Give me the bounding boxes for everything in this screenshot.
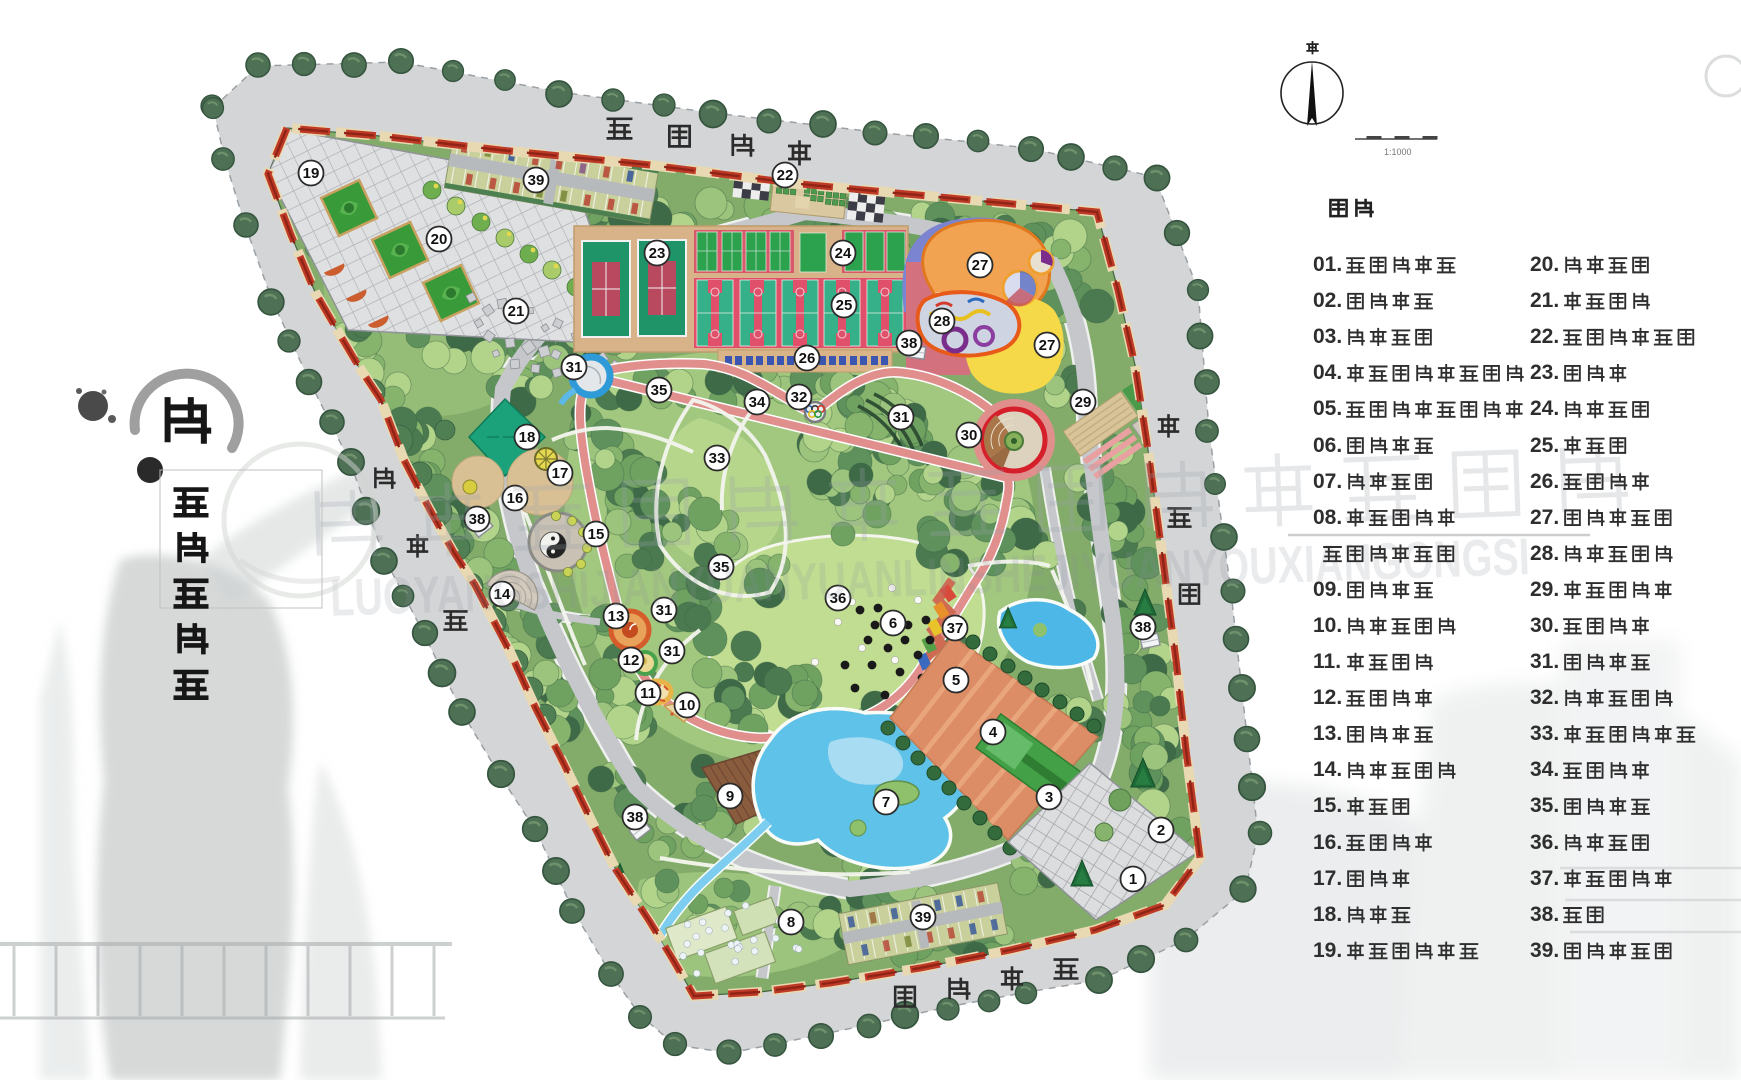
svg-text:11.: 11. bbox=[1313, 650, 1341, 673]
svg-text:8: 8 bbox=[787, 914, 795, 931]
svg-text:24.: 24. bbox=[1530, 397, 1559, 420]
svg-text:33: 33 bbox=[709, 450, 726, 467]
svg-text:38.: 38. bbox=[1530, 903, 1559, 926]
svg-text:10.: 10. bbox=[1313, 614, 1342, 637]
svg-text:28: 28 bbox=[934, 313, 951, 330]
svg-text:34: 34 bbox=[749, 394, 766, 411]
svg-text:39: 39 bbox=[915, 909, 932, 926]
svg-text:20: 20 bbox=[431, 231, 448, 248]
svg-text:1: 1 bbox=[1129, 871, 1137, 888]
svg-text:7: 7 bbox=[882, 794, 890, 811]
svg-text:38: 38 bbox=[1135, 619, 1152, 636]
svg-text:21: 21 bbox=[508, 303, 525, 320]
svg-text:30: 30 bbox=[961, 427, 978, 444]
svg-text:23: 23 bbox=[649, 245, 666, 262]
svg-text:19: 19 bbox=[303, 165, 320, 182]
svg-text:31: 31 bbox=[893, 409, 910, 426]
svg-text:2: 2 bbox=[1157, 822, 1165, 839]
svg-text:02.: 02. bbox=[1313, 289, 1342, 312]
svg-text:26.: 26. bbox=[1530, 470, 1559, 493]
svg-text:1:1000: 1:1000 bbox=[1384, 147, 1412, 157]
svg-text:04.: 04. bbox=[1313, 361, 1342, 384]
svg-text:31.: 31. bbox=[1530, 650, 1559, 673]
svg-text:01.: 01. bbox=[1313, 253, 1342, 276]
svg-text:23.: 23. bbox=[1530, 361, 1559, 384]
svg-text:35: 35 bbox=[651, 382, 668, 399]
svg-text:11: 11 bbox=[640, 685, 656, 702]
svg-text:16.: 16. bbox=[1313, 831, 1342, 854]
svg-text:10: 10 bbox=[679, 697, 696, 714]
svg-text:38: 38 bbox=[627, 809, 644, 826]
svg-text:6: 6 bbox=[889, 615, 897, 632]
svg-text:09.: 09. bbox=[1313, 578, 1342, 601]
svg-text:17.: 17. bbox=[1313, 867, 1342, 890]
svg-text:15.: 15. bbox=[1313, 794, 1342, 817]
svg-text:32.: 32. bbox=[1530, 686, 1559, 709]
svg-text:39.: 39. bbox=[1530, 939, 1559, 962]
svg-text:28.: 28. bbox=[1530, 542, 1559, 565]
svg-text:26: 26 bbox=[799, 350, 816, 367]
svg-text:18.: 18. bbox=[1313, 903, 1342, 926]
svg-text:31: 31 bbox=[664, 643, 681, 660]
svg-text:32: 32 bbox=[791, 389, 808, 406]
svg-text:17: 17 bbox=[552, 465, 569, 482]
svg-text:03.: 03. bbox=[1313, 325, 1342, 348]
svg-text:18: 18 bbox=[519, 429, 536, 446]
svg-text:5: 5 bbox=[952, 672, 960, 689]
svg-text:25.: 25. bbox=[1530, 434, 1559, 457]
svg-text:08.: 08. bbox=[1313, 506, 1342, 529]
svg-text:37: 37 bbox=[947, 620, 964, 637]
svg-text:4: 4 bbox=[989, 724, 998, 741]
svg-text:34.: 34. bbox=[1530, 758, 1559, 781]
svg-text:24: 24 bbox=[835, 245, 852, 262]
svg-text:25: 25 bbox=[836, 297, 853, 314]
svg-text:15: 15 bbox=[588, 526, 605, 543]
svg-text:27.: 27. bbox=[1530, 506, 1559, 529]
svg-text:12: 12 bbox=[623, 652, 640, 669]
svg-text:12.: 12. bbox=[1313, 686, 1342, 709]
svg-text:29.: 29. bbox=[1530, 578, 1559, 601]
svg-text:20.: 20. bbox=[1530, 253, 1559, 276]
svg-text:06.: 06. bbox=[1313, 434, 1342, 457]
svg-text:35.: 35. bbox=[1530, 794, 1559, 817]
svg-text:29: 29 bbox=[1075, 394, 1092, 411]
svg-text:9: 9 bbox=[726, 788, 734, 805]
svg-text:21.: 21. bbox=[1530, 289, 1559, 312]
svg-text:19.: 19. bbox=[1313, 939, 1342, 962]
svg-text:33.: 33. bbox=[1530, 722, 1559, 745]
svg-text:30.: 30. bbox=[1530, 614, 1559, 637]
svg-text:22.: 22. bbox=[1530, 325, 1559, 348]
svg-text:31: 31 bbox=[566, 359, 583, 376]
svg-text:38: 38 bbox=[469, 511, 486, 528]
svg-text:36.: 36. bbox=[1530, 831, 1559, 854]
svg-text:3: 3 bbox=[1045, 789, 1053, 806]
svg-text:22: 22 bbox=[777, 167, 794, 184]
svg-text:14.: 14. bbox=[1313, 758, 1342, 781]
svg-text:07.: 07. bbox=[1313, 470, 1342, 493]
svg-text:13.: 13. bbox=[1313, 722, 1342, 745]
svg-text:27: 27 bbox=[972, 257, 989, 274]
svg-text:16: 16 bbox=[507, 490, 524, 507]
svg-text:39: 39 bbox=[528, 172, 545, 189]
svg-text:38: 38 bbox=[901, 335, 918, 352]
svg-text:37.: 37. bbox=[1530, 867, 1559, 890]
svg-text:05.: 05. bbox=[1313, 397, 1342, 420]
svg-text:27: 27 bbox=[1039, 337, 1056, 354]
